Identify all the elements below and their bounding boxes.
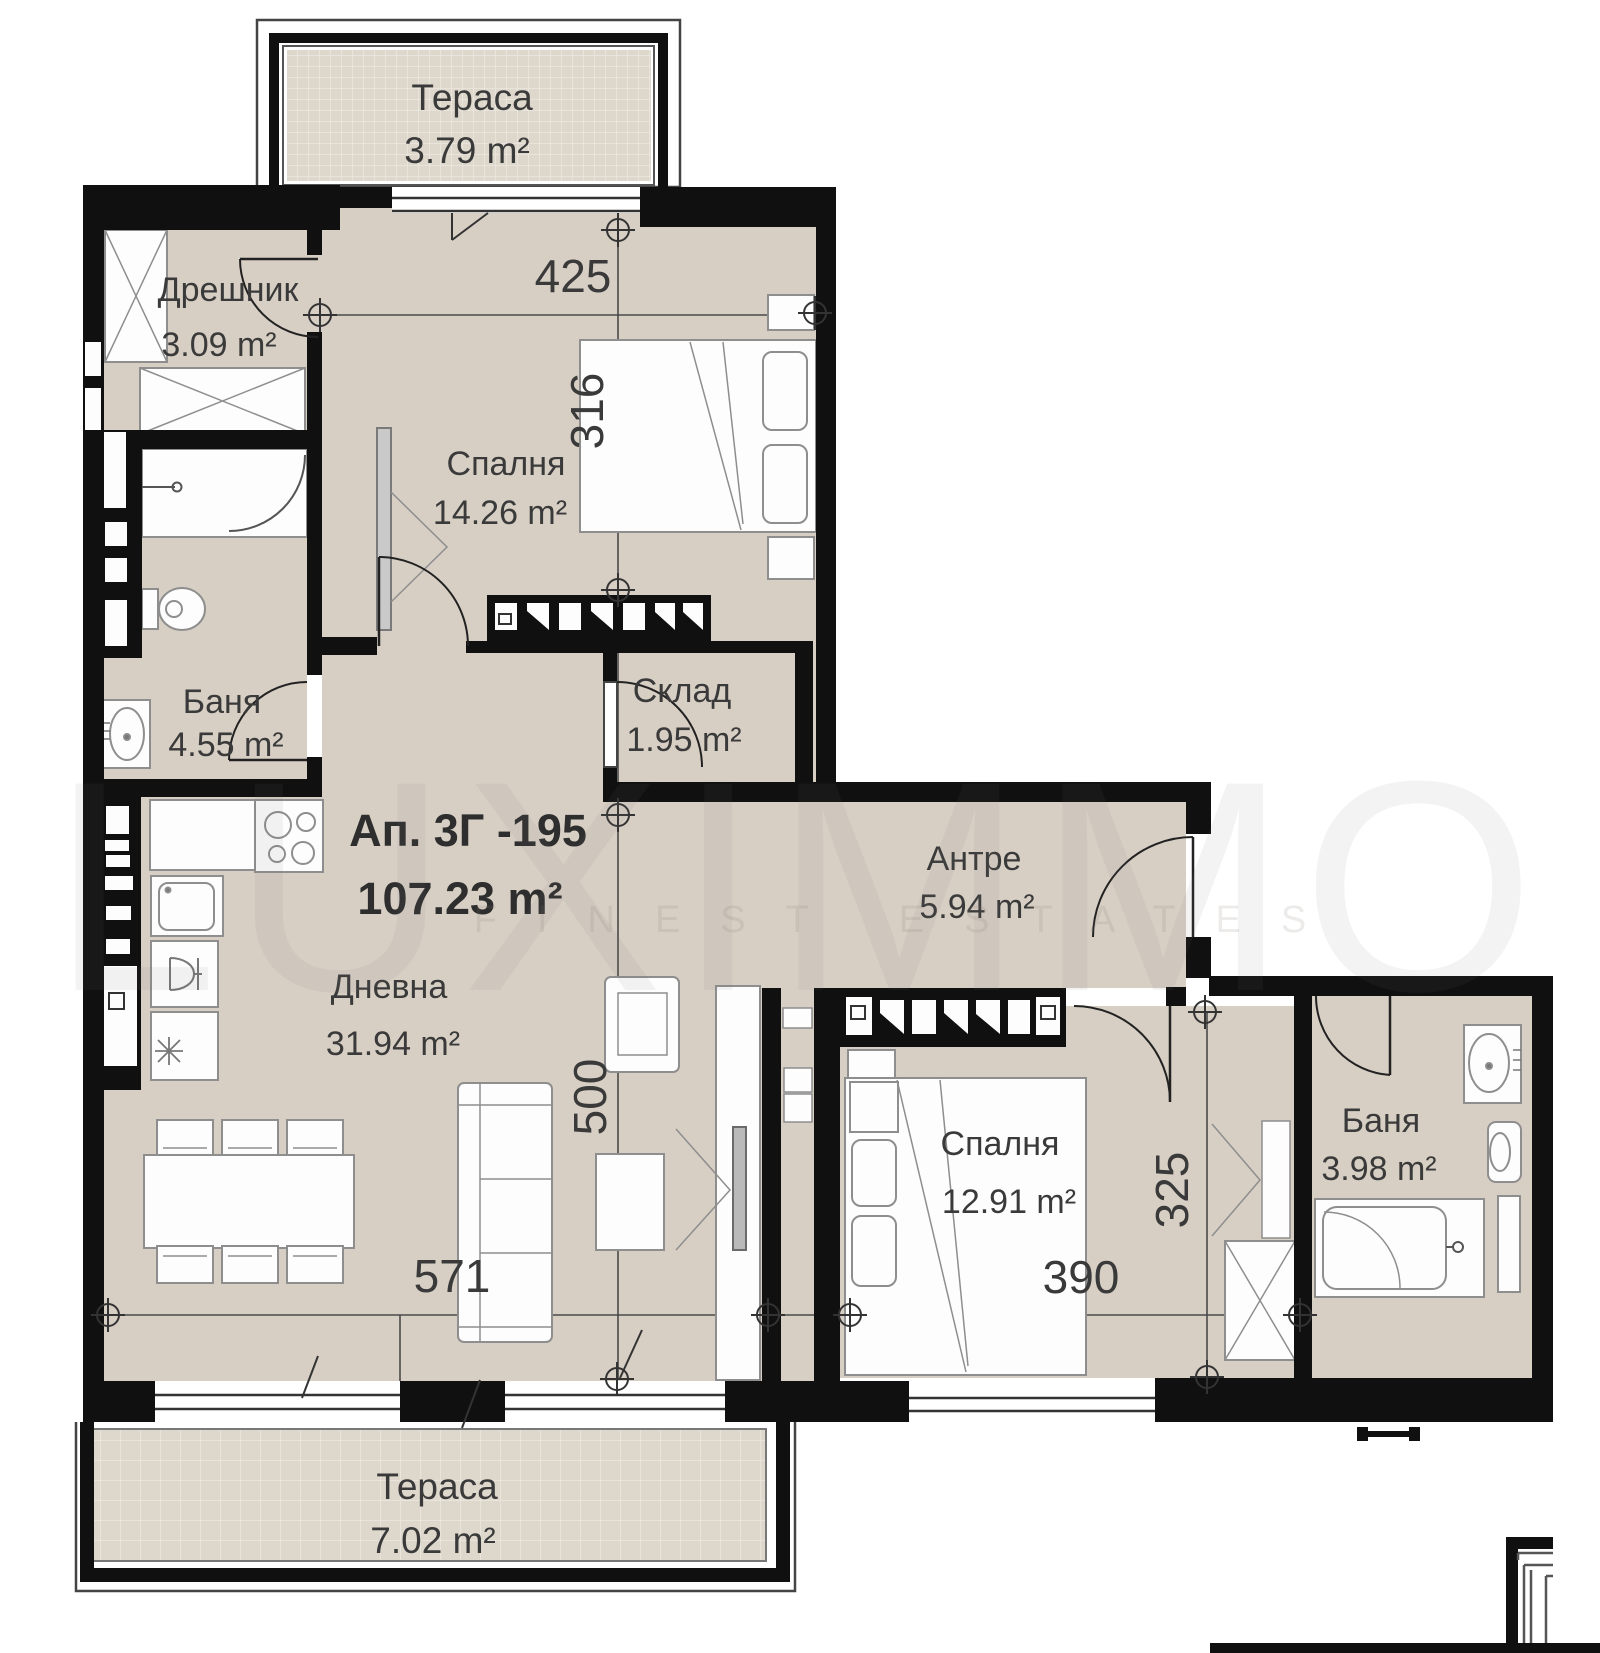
- svg-text:Склад: Склад: [633, 672, 732, 710]
- svg-text:425: 425: [535, 250, 612, 302]
- svg-text:3.09 m²: 3.09 m²: [161, 326, 276, 364]
- svg-text:Спалня: Спалня: [447, 445, 566, 483]
- svg-text:571: 571: [414, 1250, 491, 1302]
- svg-text:500: 500: [564, 1059, 616, 1136]
- svg-text:Баня: Баня: [183, 683, 261, 721]
- svg-text:Спалня: Спалня: [941, 1125, 1060, 1163]
- svg-text:Тераса: Тераса: [411, 77, 533, 118]
- svg-text:14.26 m²: 14.26 m²: [433, 494, 567, 532]
- svg-text:Дрешник: Дрешник: [158, 271, 300, 309]
- svg-text:Тераса: Тераса: [376, 1466, 498, 1507]
- svg-text:3.98 m²: 3.98 m²: [1321, 1150, 1436, 1188]
- svg-text:LUXIMMO: LUXIMMO: [51, 718, 1549, 1054]
- svg-text:Баня: Баня: [1342, 1102, 1420, 1140]
- svg-text:12.91 m²: 12.91 m²: [942, 1183, 1076, 1221]
- svg-text:390: 390: [1043, 1251, 1120, 1303]
- svg-text:FINEST ESTATES: FINEST ESTATES: [474, 899, 1347, 941]
- svg-text:325: 325: [1146, 1152, 1198, 1229]
- svg-text:316: 316: [561, 373, 613, 450]
- svg-text:3.79 m²: 3.79 m²: [404, 130, 529, 171]
- svg-text:7.02 m²: 7.02 m²: [370, 1520, 495, 1561]
